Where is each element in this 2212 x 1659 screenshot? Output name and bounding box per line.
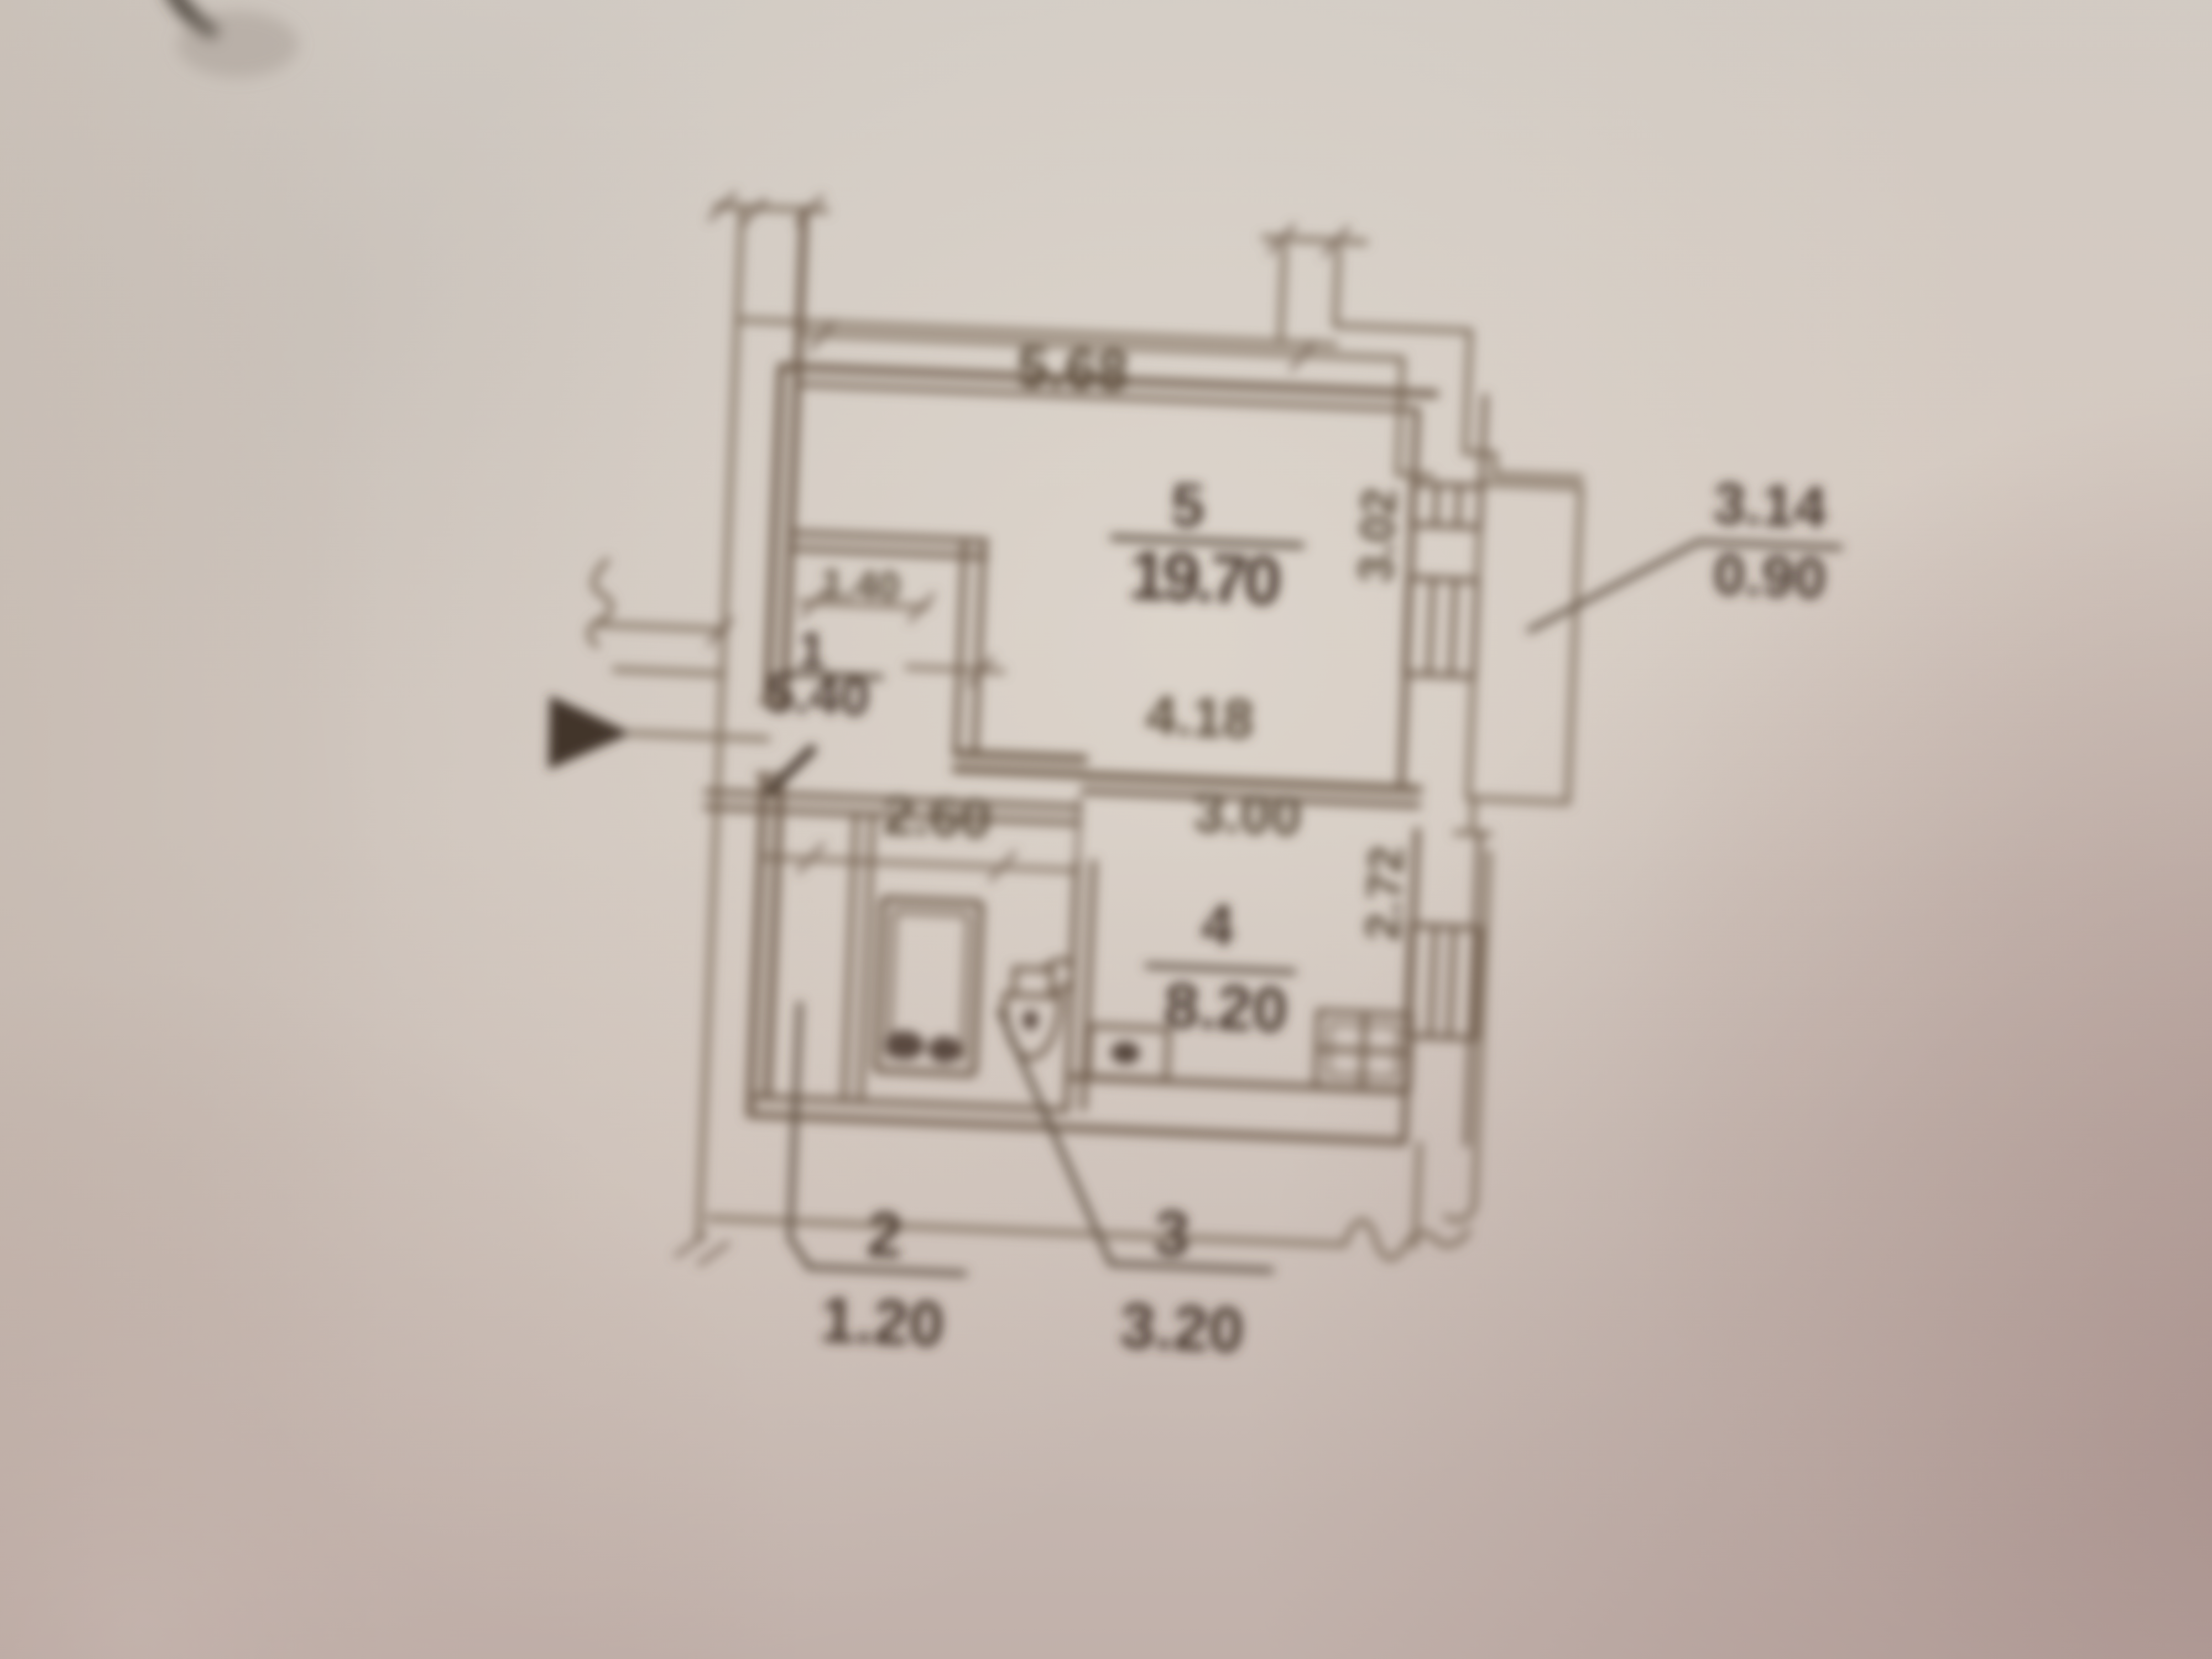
- svg-text:19.70: 19.70: [1127, 536, 1281, 619]
- svg-text:5: 5: [1170, 471, 1206, 540]
- svg-text:4: 4: [1200, 892, 1235, 958]
- svg-text:8.20: 8.20: [1162, 970, 1289, 1046]
- svg-text:2: 2: [865, 1199, 904, 1271]
- svg-text:5.68: 5.68: [1015, 335, 1130, 404]
- svg-text:2.72: 2.72: [1355, 845, 1413, 942]
- svg-text:3.00: 3.00: [1193, 781, 1303, 848]
- svg-text:1.20: 1.20: [819, 1284, 946, 1360]
- svg-text:3.02: 3.02: [1348, 487, 1406, 583]
- svg-text:3: 3: [1153, 1197, 1191, 1270]
- svg-text:5.40: 5.40: [763, 662, 871, 727]
- svg-text:3.14: 3.14: [1712, 471, 1828, 540]
- svg-text:1.40: 1.40: [820, 560, 901, 609]
- svg-text:4.18: 4.18: [1145, 684, 1255, 750]
- svg-text:2.60: 2.60: [882, 784, 992, 850]
- svg-text:0.90: 0.90: [1712, 542, 1828, 611]
- svg-text:3.20: 3.20: [1119, 1290, 1245, 1366]
